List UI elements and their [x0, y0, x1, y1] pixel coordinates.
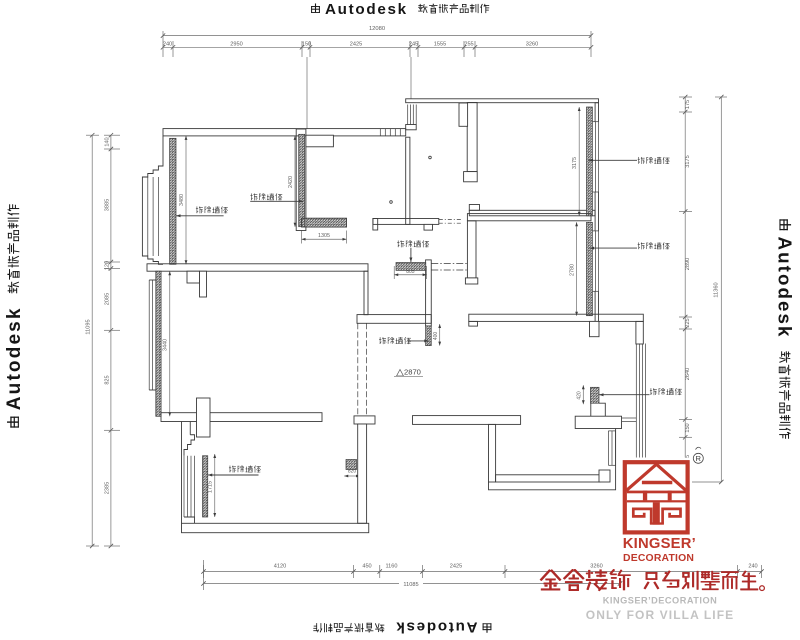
svg-text:450: 450: [362, 564, 371, 570]
svg-text:3885: 3885: [104, 199, 110, 211]
svg-text:400: 400: [433, 332, 439, 341]
svg-text:2420: 2420: [288, 176, 294, 188]
svg-text:2425: 2425: [350, 41, 362, 47]
svg-text:R: R: [696, 454, 702, 463]
svg-text:2640: 2640: [685, 368, 691, 380]
svg-text:11085: 11085: [403, 582, 418, 588]
svg-text:2890: 2890: [685, 258, 691, 270]
svg-text:DECORATION: DECORATION: [623, 553, 694, 564]
svg-text:420: 420: [577, 391, 583, 400]
svg-text:2780: 2780: [569, 264, 575, 276]
svg-text:245: 245: [409, 41, 418, 47]
svg-text:11095: 11095: [86, 319, 92, 334]
svg-text:225: 225: [685, 318, 691, 327]
svg-text:120: 120: [104, 261, 110, 270]
svg-text:1555: 1555: [434, 41, 446, 47]
svg-text:KINGSER’: KINGSER’: [623, 536, 696, 552]
svg-text:KINGSER’DECORATION: KINGSER’DECORATION: [603, 596, 718, 606]
svg-text:3260: 3260: [526, 41, 538, 47]
svg-text:255: 255: [464, 41, 473, 47]
svg-text:2385: 2385: [104, 482, 110, 494]
svg-text:3175: 3175: [685, 155, 691, 167]
svg-text:2085: 2085: [104, 293, 110, 305]
svg-text:140: 140: [104, 137, 110, 146]
svg-text:240: 240: [163, 41, 172, 47]
svg-text:2870: 2870: [404, 367, 421, 376]
svg-text:1715: 1715: [208, 481, 214, 493]
svg-text:3440: 3440: [163, 339, 169, 351]
svg-text:1305: 1305: [318, 233, 330, 239]
svg-text:240: 240: [748, 564, 757, 570]
svg-text:ONLY FOR VILLA LIFE: ONLY FOR VILLA LIFE: [586, 608, 734, 622]
svg-text:3260: 3260: [590, 564, 602, 570]
svg-text:2425: 2425: [450, 564, 462, 570]
svg-text:175: 175: [685, 100, 691, 109]
svg-text:825: 825: [104, 375, 110, 384]
svg-text:1160: 1160: [385, 564, 397, 570]
svg-text:12080: 12080: [369, 26, 385, 32]
svg-text:2950: 2950: [230, 41, 242, 47]
svg-text:4120: 4120: [274, 564, 286, 570]
svg-text:11360: 11360: [714, 282, 720, 297]
svg-text:150: 150: [685, 423, 691, 432]
svg-text:3480: 3480: [179, 194, 185, 206]
svg-text:150: 150: [302, 41, 311, 47]
svg-text:3175: 3175: [572, 157, 578, 169]
